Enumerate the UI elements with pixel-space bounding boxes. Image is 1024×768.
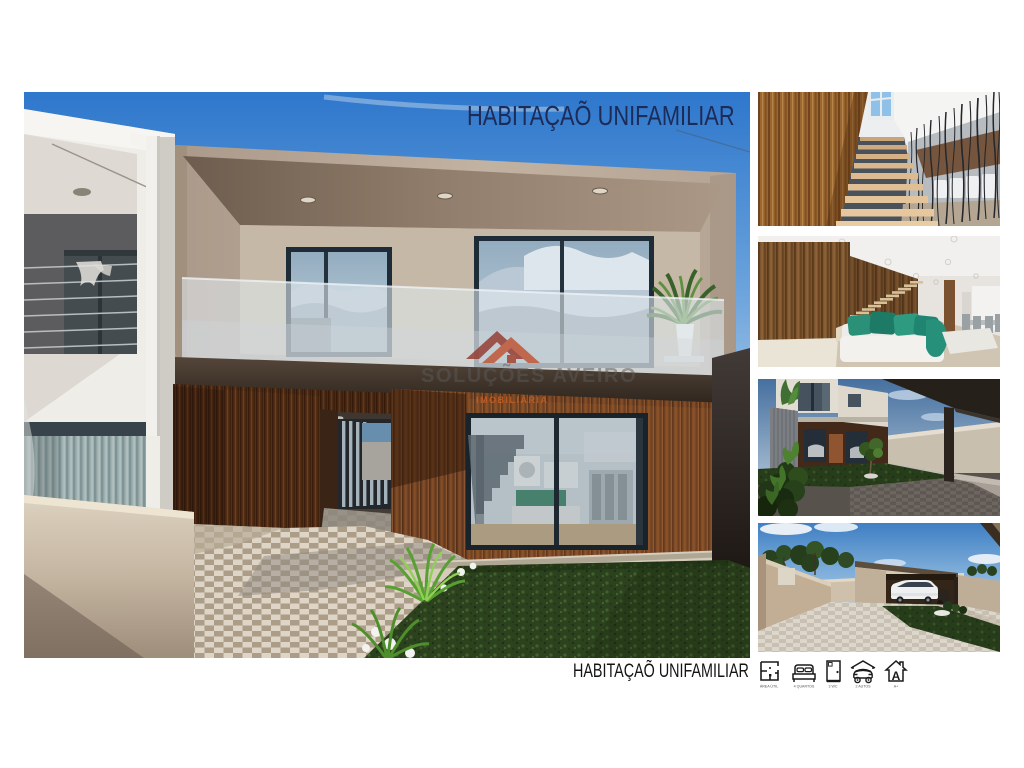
svg-text:4 QUARTOS: 4 QUARTOS [794,685,815,689]
svg-text:HABITAÇAÕ UNIFAMILIAR: HABITAÇAÕ UNIFAMILIAR [467,99,735,131]
svg-text:IMOBILIÁRIA: IMOBILIÁRIA [476,395,549,405]
svg-text:SOLUÇÕES AVEIRO: SOLUÇÕES AVEIRO [421,363,637,387]
svg-text:A: A [892,669,901,683]
svg-text:2 AUTOS: 2 AUTOS [855,685,871,689]
svg-text:A+: A+ [894,685,899,689]
svg-text:3 WC: 3 WC [829,685,838,689]
svg-text:ÁREA ÚTIL: ÁREA ÚTIL [760,684,778,689]
